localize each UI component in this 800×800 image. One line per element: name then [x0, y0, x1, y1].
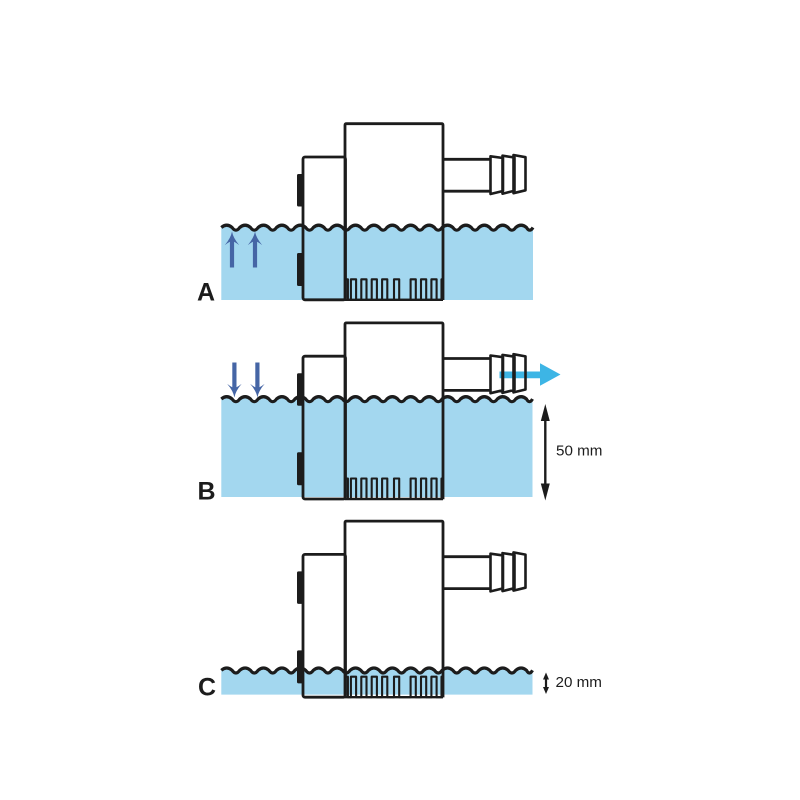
svg-text:20 mm: 20 mm — [556, 674, 602, 691]
svg-text:C: C — [198, 674, 216, 702]
svg-text:A: A — [197, 279, 215, 307]
svg-text:B: B — [198, 478, 216, 506]
svg-text:50 mm: 50 mm — [556, 442, 602, 459]
